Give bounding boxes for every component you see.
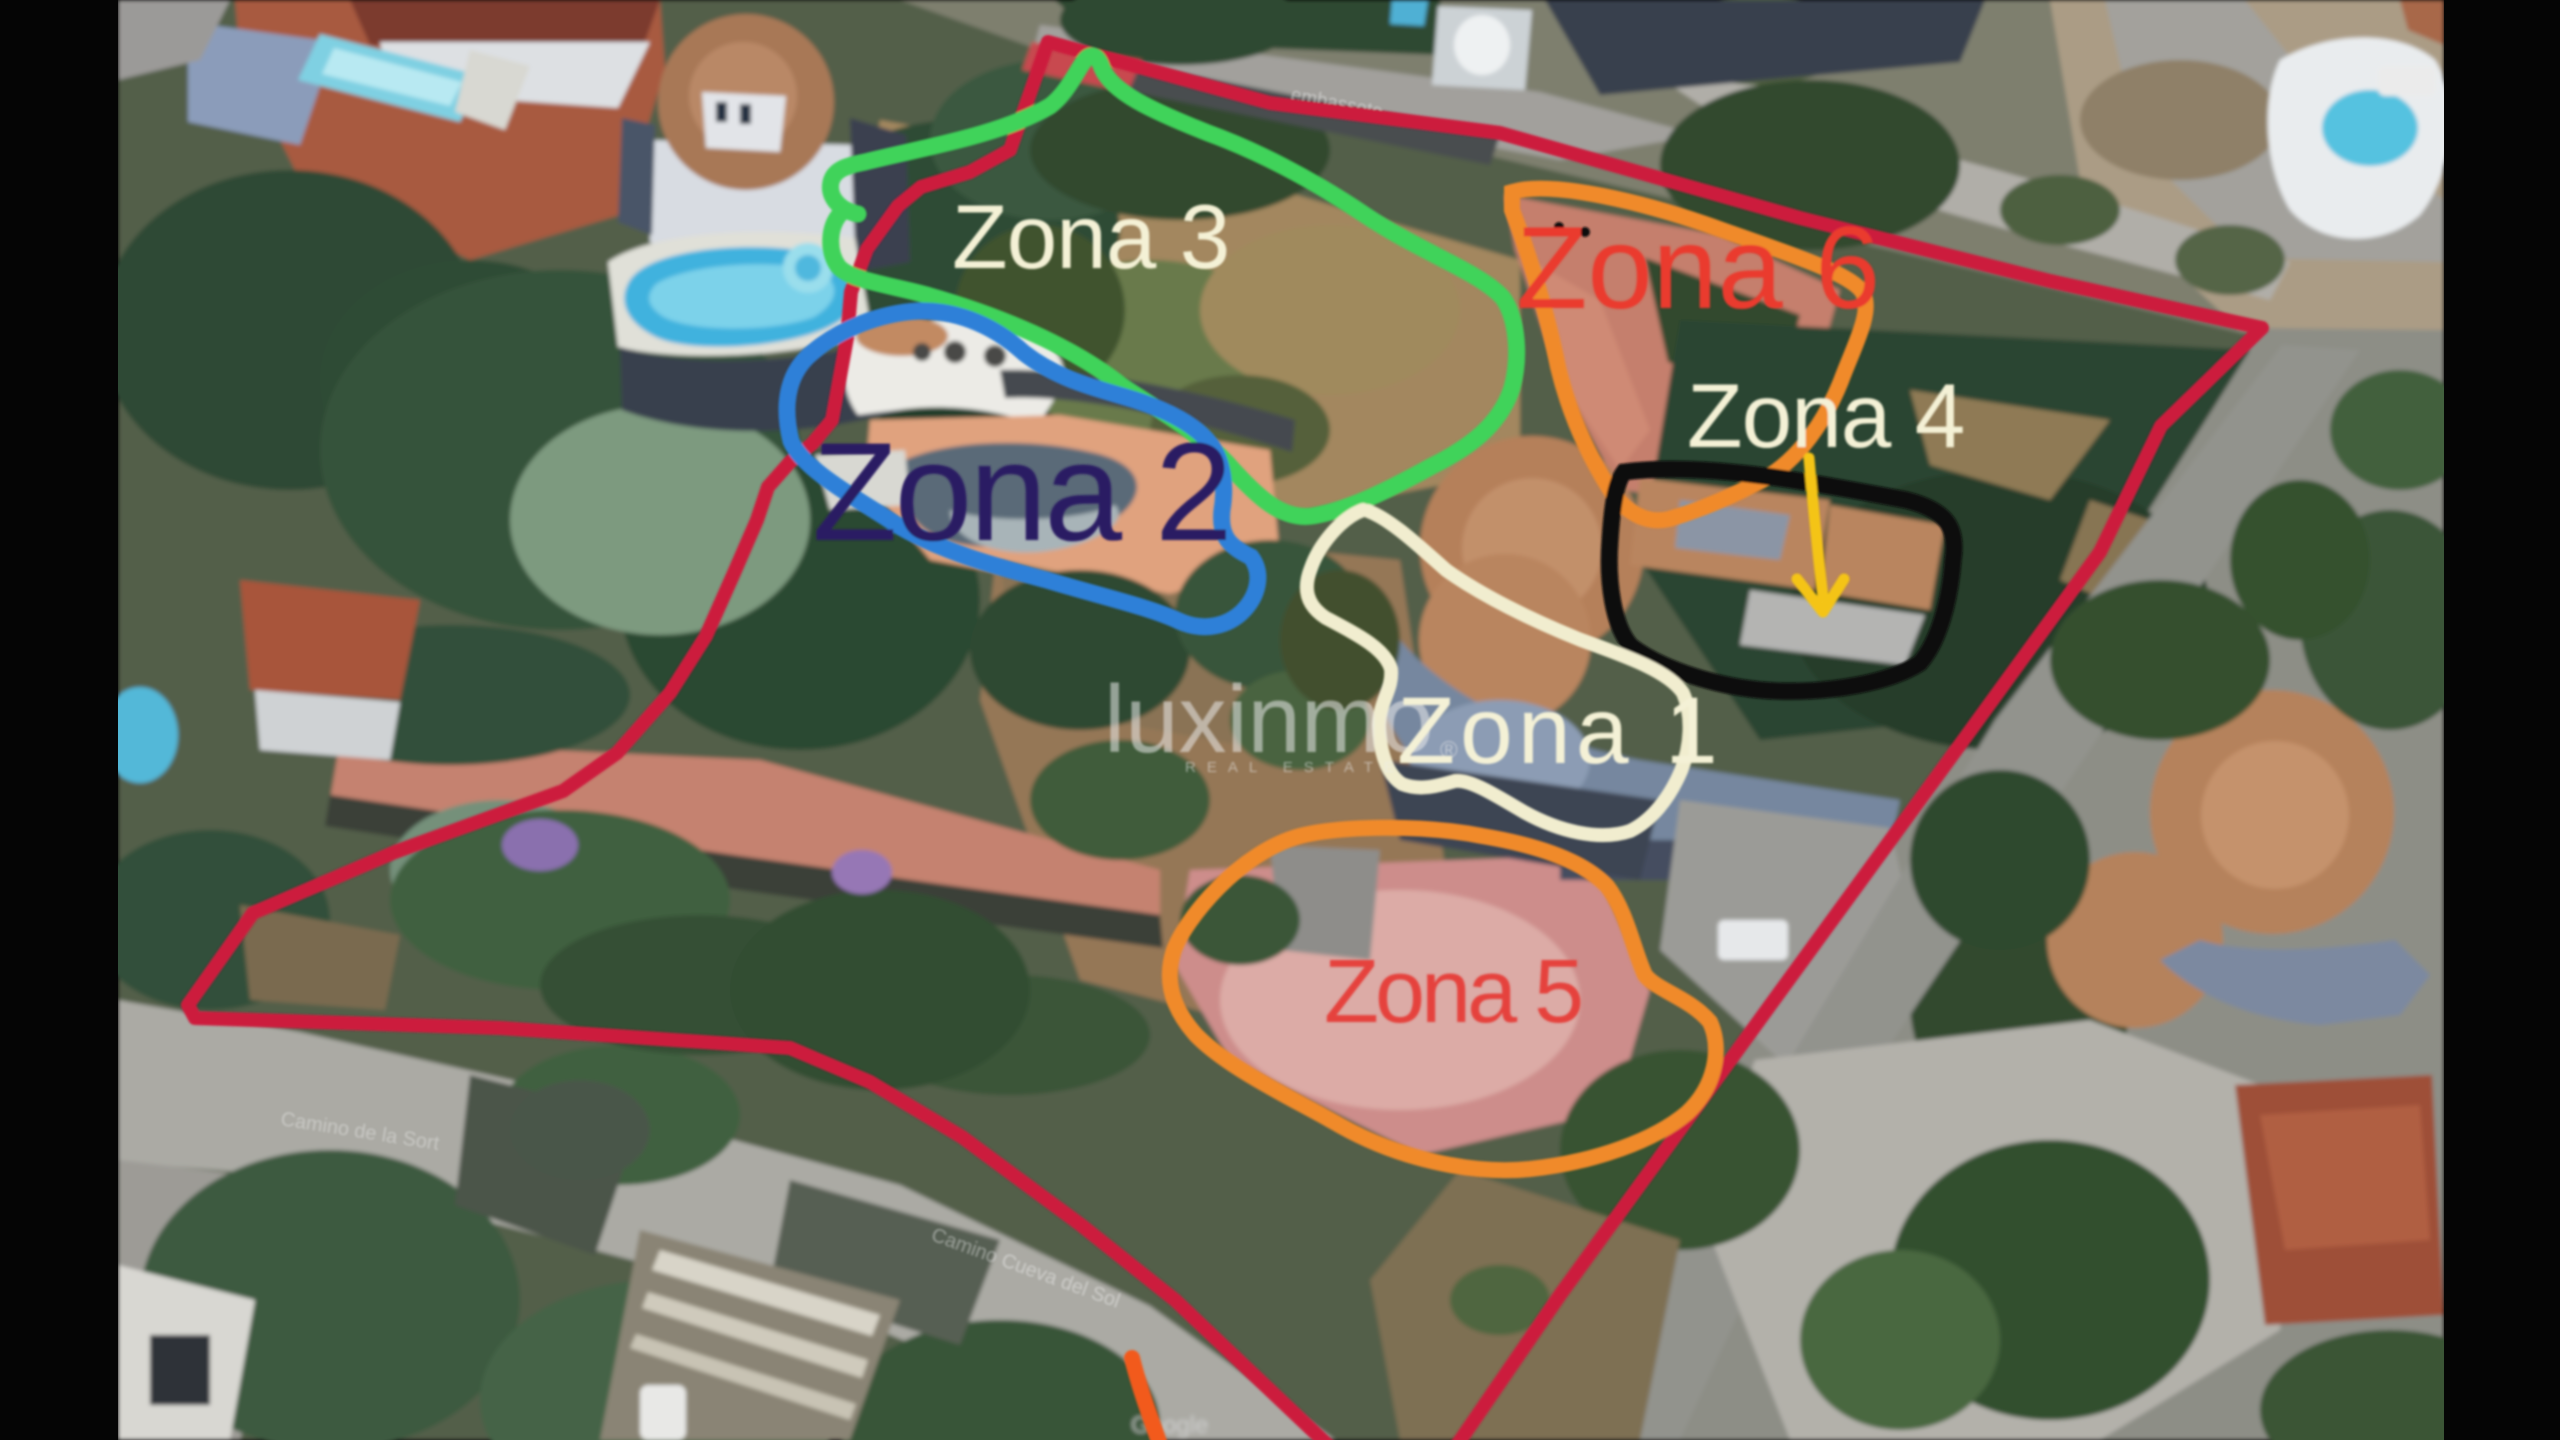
svg-text:Zona 4: Zona 4 [1687, 366, 1964, 467]
svg-text:Zona 2: Zona 2 [812, 413, 1230, 570]
svg-text:Zona 5: Zona 5 [1324, 942, 1581, 1042]
svg-text:Zona 1: Zona 1 [1397, 678, 1723, 784]
svg-text:luxinmo: luxinmo [1104, 666, 1434, 773]
svg-text:Zona 3: Zona 3 [952, 187, 1229, 288]
svg-text:Zona 6: Zona 6 [1516, 202, 1880, 333]
svg-text:REAL ESTATE: REAL ESTATE [1185, 759, 1405, 776]
